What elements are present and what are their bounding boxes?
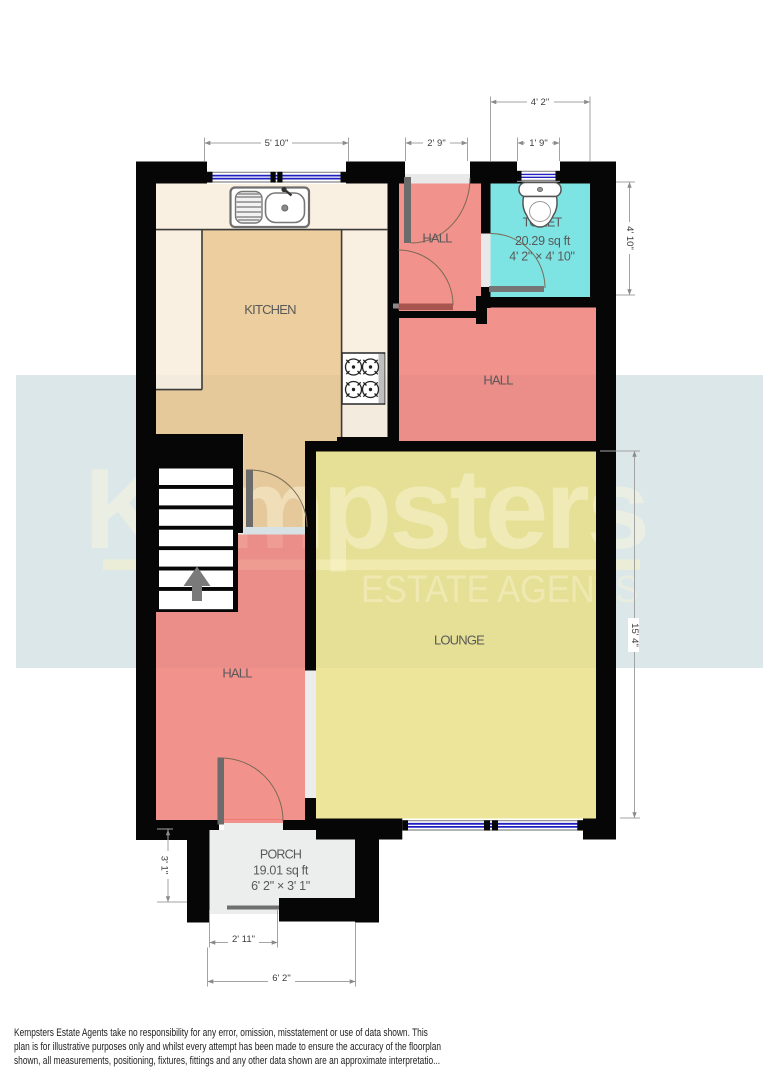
svg-text:1' 9": 1' 9" bbox=[529, 138, 547, 149]
svg-text:5' 10": 5' 10" bbox=[265, 138, 289, 149]
svg-text:PORCH: PORCH bbox=[260, 848, 302, 862]
svg-text:4' 2": 4' 2" bbox=[531, 97, 549, 108]
svg-text:HALL: HALL bbox=[422, 231, 452, 246]
svg-text:4' 10": 4' 10" bbox=[624, 226, 635, 250]
svg-text:20.29 sq ft: 20.29 sq ft bbox=[515, 234, 571, 248]
svg-text:15' 4": 15' 4" bbox=[629, 623, 640, 647]
svg-text:19.01 sq ft: 19.01 sq ft bbox=[253, 864, 309, 878]
svg-text:2' 9": 2' 9" bbox=[427, 138, 445, 149]
svg-text:LOUNGE: LOUNGE bbox=[434, 633, 485, 648]
svg-text:HALL: HALL bbox=[222, 666, 252, 681]
svg-text:6' 2": 6' 2" bbox=[272, 973, 290, 984]
svg-text:HALL: HALL bbox=[483, 373, 513, 388]
svg-text:3' 1": 3' 1" bbox=[159, 856, 170, 874]
svg-text:4' 2" × 4' 10": 4' 2" × 4' 10" bbox=[509, 250, 574, 264]
svg-text:KITCHEN: KITCHEN bbox=[244, 302, 296, 317]
svg-text:6' 2" × 3' 1": 6' 2" × 3' 1" bbox=[251, 879, 310, 893]
svg-text:2' 11": 2' 11" bbox=[232, 934, 255, 945]
